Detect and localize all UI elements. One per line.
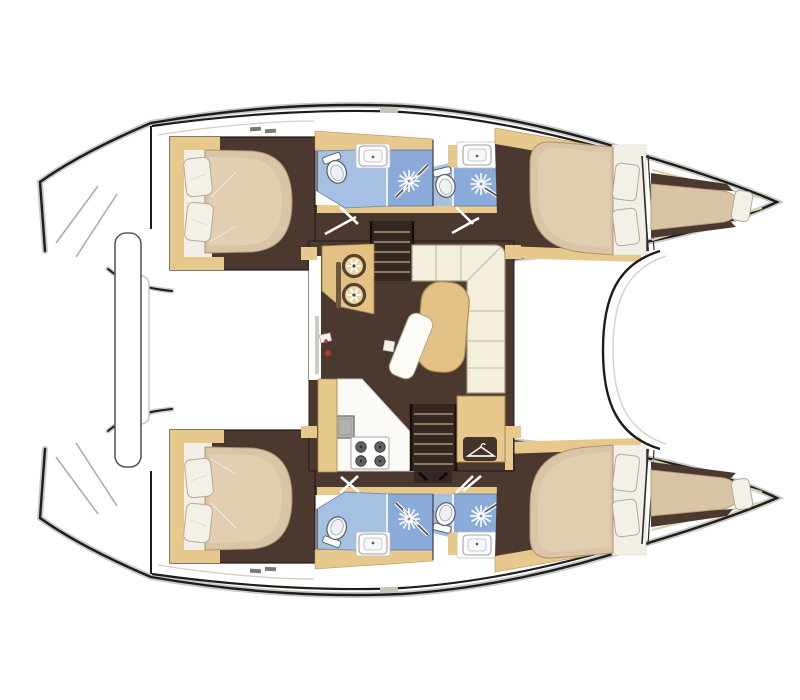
threshold (301, 247, 317, 260)
wardrobe-plate (463, 437, 497, 461)
counter-fiddle (336, 262, 341, 308)
table-leg (383, 340, 395, 352)
saloon (301, 217, 521, 492)
galley-cabinet (318, 379, 337, 472)
stairs-port-hull (371, 221, 413, 281)
platform-beam (115, 233, 141, 467)
galley-sink-icon (344, 285, 365, 306)
threshold (505, 438, 513, 470)
knob (324, 339, 328, 343)
floorplan-canvas (0, 0, 800, 700)
threshold (505, 245, 521, 259)
threshold (505, 426, 521, 438)
knob (325, 350, 331, 356)
catamaran-floorplan (0, 0, 800, 700)
stairs-starboard-hull (411, 404, 456, 483)
galley-sink-icon (344, 256, 365, 277)
window-shade (315, 316, 319, 374)
threshold (301, 426, 317, 438)
wardrobe (457, 396, 505, 462)
stove-icon (351, 437, 389, 469)
